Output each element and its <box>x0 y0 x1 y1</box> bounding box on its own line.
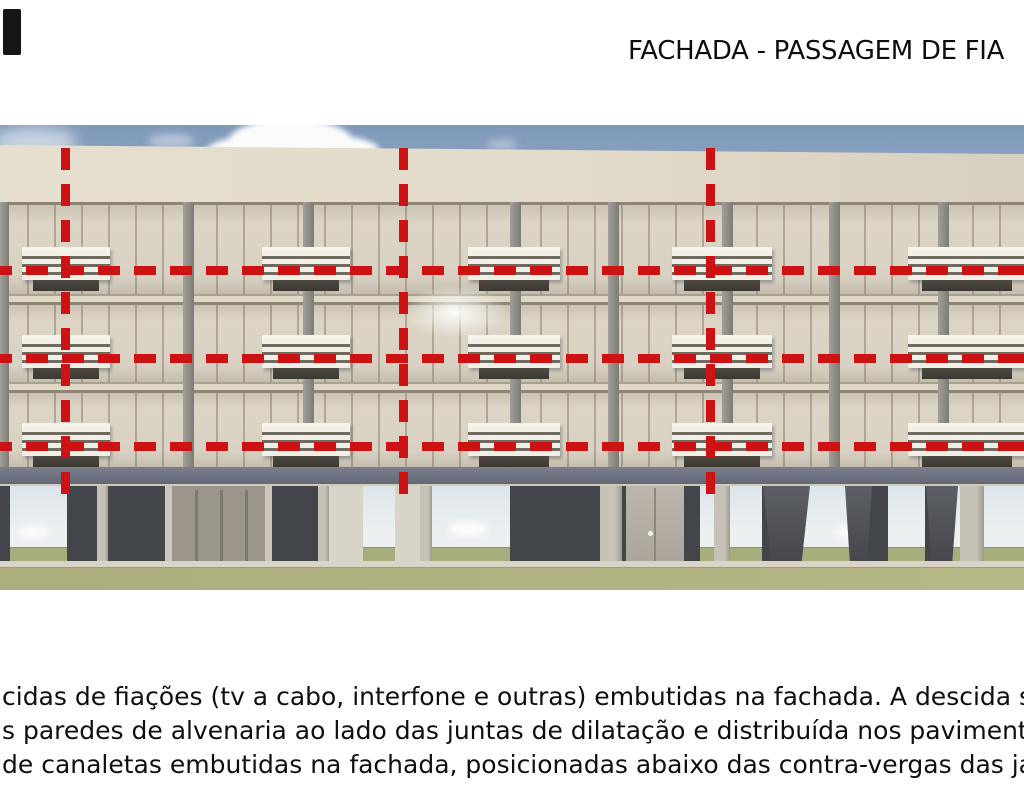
red-dashed-line-horizontal <box>0 266 1024 275</box>
caption-paragraph: cidas de fiações (tv a cabo, interfone e… <box>2 680 1024 782</box>
page-title: FACHADA - PASSAGEM DE FIA <box>628 36 1004 66</box>
red-dashed-line-vertical <box>706 148 715 497</box>
caption-line-2: s paredes de alvenaria ao lado das junta… <box>2 714 1024 748</box>
red-dashed-line-horizontal <box>0 354 1024 363</box>
caption-line-1: cidas de fiações (tv a cabo, interfone e… <box>2 680 1024 714</box>
red-dashed-line-vertical <box>61 148 70 497</box>
document-page: FACHADA - PASSAGEM DE FIA cidas de fiaçõ… <box>0 0 1024 800</box>
wiring-route-overlay <box>0 125 1024 590</box>
red-dashed-line-vertical <box>399 148 408 497</box>
clipped-text-caret-artifact <box>3 9 21 55</box>
caption-line-3: de canaletas embutidas na fachada, posic… <box>2 748 1024 782</box>
red-dashed-line-horizontal <box>0 442 1024 451</box>
facade-rendering <box>0 125 1024 590</box>
